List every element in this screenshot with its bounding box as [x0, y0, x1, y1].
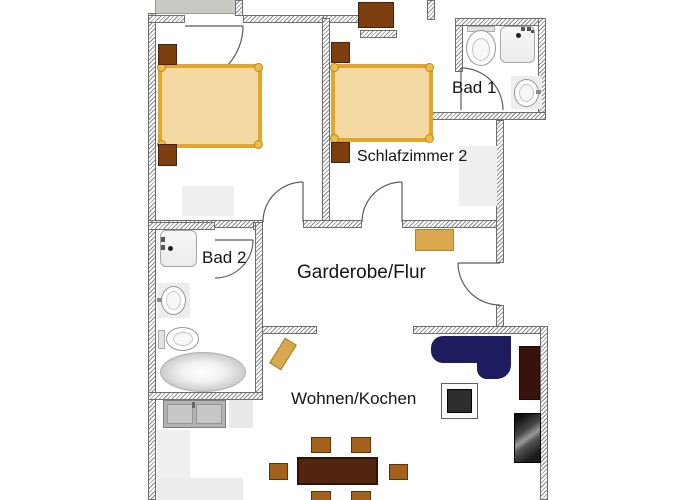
entry-door [458, 263, 500, 305]
toilet-cistern [158, 330, 165, 349]
bedroom2-door [362, 182, 402, 222]
washbasin-bowl-icon [166, 291, 181, 310]
shower [500, 26, 535, 63]
sink-basin-icon [196, 404, 222, 424]
bedpost-icon [254, 140, 263, 149]
washbasin-bowl-icon [519, 84, 534, 102]
floor-plan: Schlafzimmer 2 Bad 1 Bad 2 Garderobe/Flu… [0, 0, 700, 500]
tap-icon [192, 402, 195, 408]
shower [160, 230, 197, 267]
bed [158, 64, 262, 148]
room-label-garderobe-flur: Garderobe/Flur [297, 262, 426, 284]
toilet-bowl-icon [173, 332, 193, 346]
bedpost-icon [425, 63, 434, 72]
coffee-table [441, 383, 478, 419]
bedpost-icon [254, 63, 263, 72]
nightstand [158, 44, 177, 65]
toilet-bowl-icon [472, 38, 490, 61]
room-label-bad-2: Bad 2 [202, 248, 246, 268]
dining-chair [351, 491, 371, 500]
rug [182, 186, 234, 216]
drain-icon [516, 33, 521, 38]
bed [331, 64, 433, 142]
nightstand [158, 144, 177, 166]
bedpost-icon [425, 134, 434, 143]
bathtub [160, 352, 246, 392]
sink-basin-icon [167, 404, 193, 424]
coffee-table-top-icon [447, 389, 472, 413]
dining-chair [311, 491, 331, 500]
counter [157, 478, 243, 500]
drain-icon [168, 246, 173, 251]
faucet-icon [161, 237, 165, 242]
dining-chair [311, 437, 331, 453]
tap-icon [157, 298, 162, 302]
room-label-wohnen-kochen: Wohnen/Kochen [291, 389, 416, 409]
wardrobe-cabinet [415, 229, 454, 251]
armchair [514, 413, 541, 463]
faucet-icon [161, 245, 165, 250]
dining-table [297, 457, 378, 485]
room-label-bad-1: Bad 1 [452, 78, 496, 98]
dresser [358, 2, 394, 28]
dining-chair [269, 463, 288, 480]
kitchen-sink [163, 400, 226, 428]
tap-icon [536, 90, 541, 94]
nightstand [331, 42, 350, 63]
bedroom1-door [263, 182, 303, 222]
room-label-schlafzimmer-2: Schlafzimmer 2 [357, 148, 467, 166]
faucet-icon [521, 27, 525, 31]
tv-board [519, 346, 540, 400]
dining-chair [351, 437, 371, 453]
faucet-icon [531, 30, 534, 33]
nightstand [331, 142, 350, 163]
dining-chair [389, 464, 408, 480]
corner-sofa [477, 336, 511, 379]
bedpost-icon [330, 63, 339, 72]
counter [229, 400, 253, 428]
